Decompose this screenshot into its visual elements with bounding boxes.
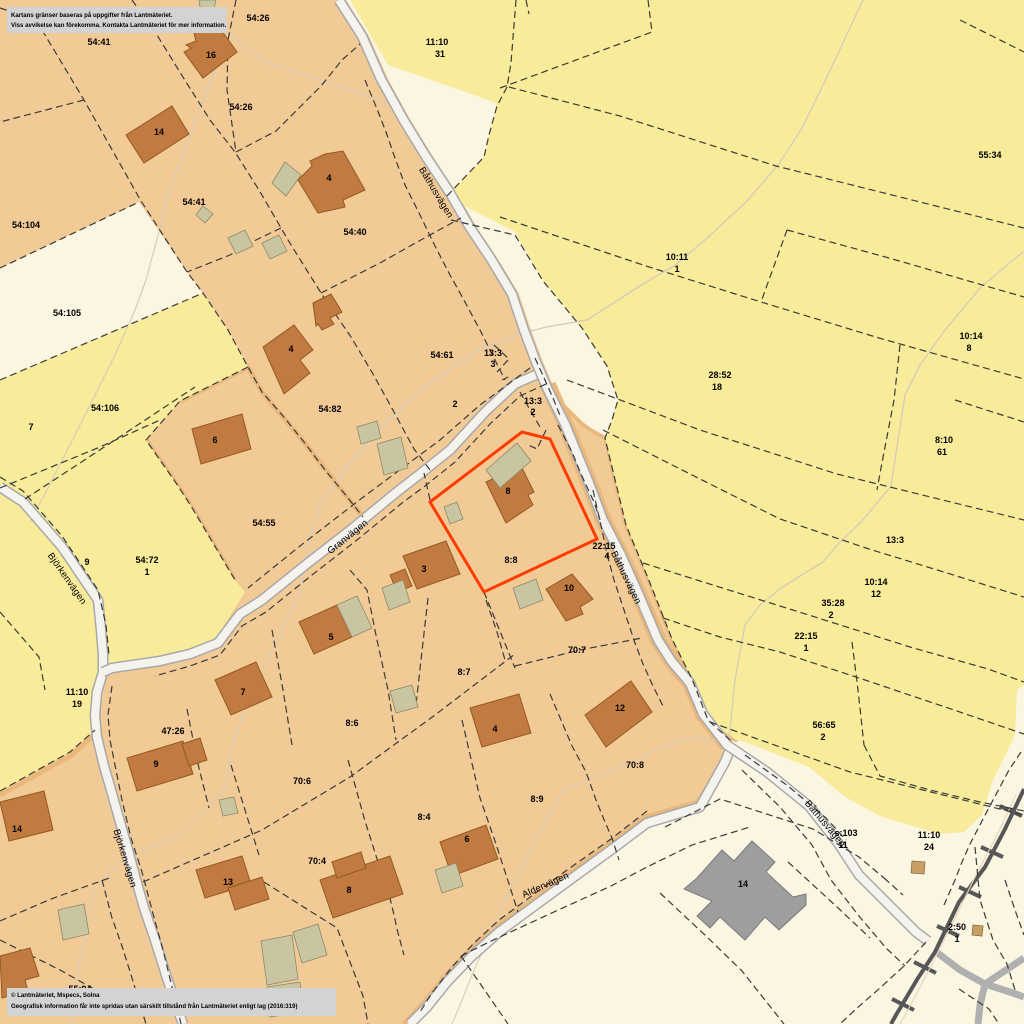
svg-text:6: 6 <box>464 834 469 844</box>
svg-text:7: 7 <box>28 422 33 432</box>
svg-text:14: 14 <box>12 824 22 834</box>
svg-text:54:41: 54:41 <box>182 197 205 207</box>
svg-text:11:10: 11:10 <box>426 37 449 47</box>
svg-text:Kartans gränser baseras på upp: Kartans gränser baseras på uppgifter frå… <box>11 12 173 19</box>
svg-text:Geografisk information får int: Geografisk information får inte spridas … <box>11 1003 297 1010</box>
svg-text:14: 14 <box>154 127 164 137</box>
svg-text:12: 12 <box>871 589 881 599</box>
svg-text:47:26: 47:26 <box>161 726 184 736</box>
svg-text:8:4: 8:4 <box>417 812 430 822</box>
svg-text:10:14: 10:14 <box>864 577 887 587</box>
svg-text:54:40: 54:40 <box>343 227 366 237</box>
svg-text:13:3: 13:3 <box>484 348 502 358</box>
svg-text:8:10: 8:10 <box>935 435 953 445</box>
svg-text:1: 1 <box>803 643 808 653</box>
svg-text:16: 16 <box>206 50 216 60</box>
svg-text:70:7: 70:7 <box>568 645 586 655</box>
svg-text:10:11: 10:11 <box>666 252 689 262</box>
svg-text:54:41: 54:41 <box>87 37 110 47</box>
svg-text:22:15: 22:15 <box>592 541 615 551</box>
svg-text:18: 18 <box>712 382 722 392</box>
svg-text:2:50: 2:50 <box>948 922 966 932</box>
svg-text:1: 1 <box>674 264 679 274</box>
svg-text:54:61: 54:61 <box>430 350 453 360</box>
svg-text:8:7: 8:7 <box>457 667 470 677</box>
svg-text:70:6: 70:6 <box>293 776 311 786</box>
svg-text:9: 9 <box>153 759 158 769</box>
svg-text:1: 1 <box>954 934 959 944</box>
svg-text:22:15: 22:15 <box>794 631 817 641</box>
svg-text:6: 6 <box>212 435 217 445</box>
svg-text:31: 31 <box>435 49 445 59</box>
svg-text:70:4: 70:4 <box>308 856 326 866</box>
svg-text:54:72: 54:72 <box>135 555 158 565</box>
svg-text:4: 4 <box>492 724 497 734</box>
svg-text:3: 3 <box>490 359 495 369</box>
svg-text:2: 2 <box>452 399 457 409</box>
svg-text:54:26: 54:26 <box>246 13 269 23</box>
svg-text:8: 8 <box>966 343 971 353</box>
svg-text:28:52: 28:52 <box>708 370 731 380</box>
svg-text:4: 4 <box>288 344 293 354</box>
svg-text:10: 10 <box>564 583 574 593</box>
svg-text:13: 13 <box>223 877 233 887</box>
svg-text:8:6: 8:6 <box>345 718 358 728</box>
svg-text:4: 4 <box>326 173 331 183</box>
svg-text:35:28: 35:28 <box>821 598 844 608</box>
svg-text:11:10: 11:10 <box>918 830 941 840</box>
svg-text:55:34: 55:34 <box>978 150 1001 160</box>
svg-text:19: 19 <box>72 699 82 709</box>
svg-text:56:65: 56:65 <box>812 720 835 730</box>
svg-text:2: 2 <box>530 407 535 417</box>
svg-text:13:3: 13:3 <box>524 396 542 406</box>
svg-text:13:3: 13:3 <box>886 535 904 545</box>
svg-text:70:8: 70:8 <box>626 760 644 770</box>
svg-text:8: 8 <box>346 885 351 895</box>
svg-text:8:9: 8:9 <box>530 794 543 804</box>
svg-text:12: 12 <box>615 703 625 713</box>
svg-text:3: 3 <box>421 564 426 574</box>
svg-text:54:106: 54:106 <box>91 403 119 413</box>
svg-text:2: 2 <box>828 610 833 620</box>
svg-text:54:55: 54:55 <box>252 518 275 528</box>
svg-text:54:82: 54:82 <box>318 404 341 414</box>
svg-text:11:10: 11:10 <box>66 687 89 697</box>
svg-text:5: 5 <box>328 632 333 642</box>
svg-text:9: 9 <box>84 557 89 567</box>
svg-text:2: 2 <box>820 732 825 742</box>
svg-text:54:26: 54:26 <box>229 102 252 112</box>
svg-text:7: 7 <box>240 687 245 697</box>
svg-text:54:105: 54:105 <box>53 308 81 318</box>
svg-text:1: 1 <box>144 567 149 577</box>
svg-text:14: 14 <box>738 879 748 889</box>
svg-text:61: 61 <box>937 447 947 457</box>
svg-text:24: 24 <box>924 842 934 852</box>
svg-text:8: 8 <box>505 486 510 496</box>
svg-text:4: 4 <box>604 551 609 561</box>
svg-text:Viss avvikelse kan förekomma.: Viss avvikelse kan förekomma. Kontakta L… <box>11 22 227 29</box>
svg-text:8:8: 8:8 <box>504 555 517 565</box>
svg-text:10:14: 10:14 <box>959 331 982 341</box>
svg-text:54:104: 54:104 <box>12 220 40 230</box>
svg-text:© Lantmäteriet, Mspecs, Solna: © Lantmäteriet, Mspecs, Solna <box>11 992 100 999</box>
